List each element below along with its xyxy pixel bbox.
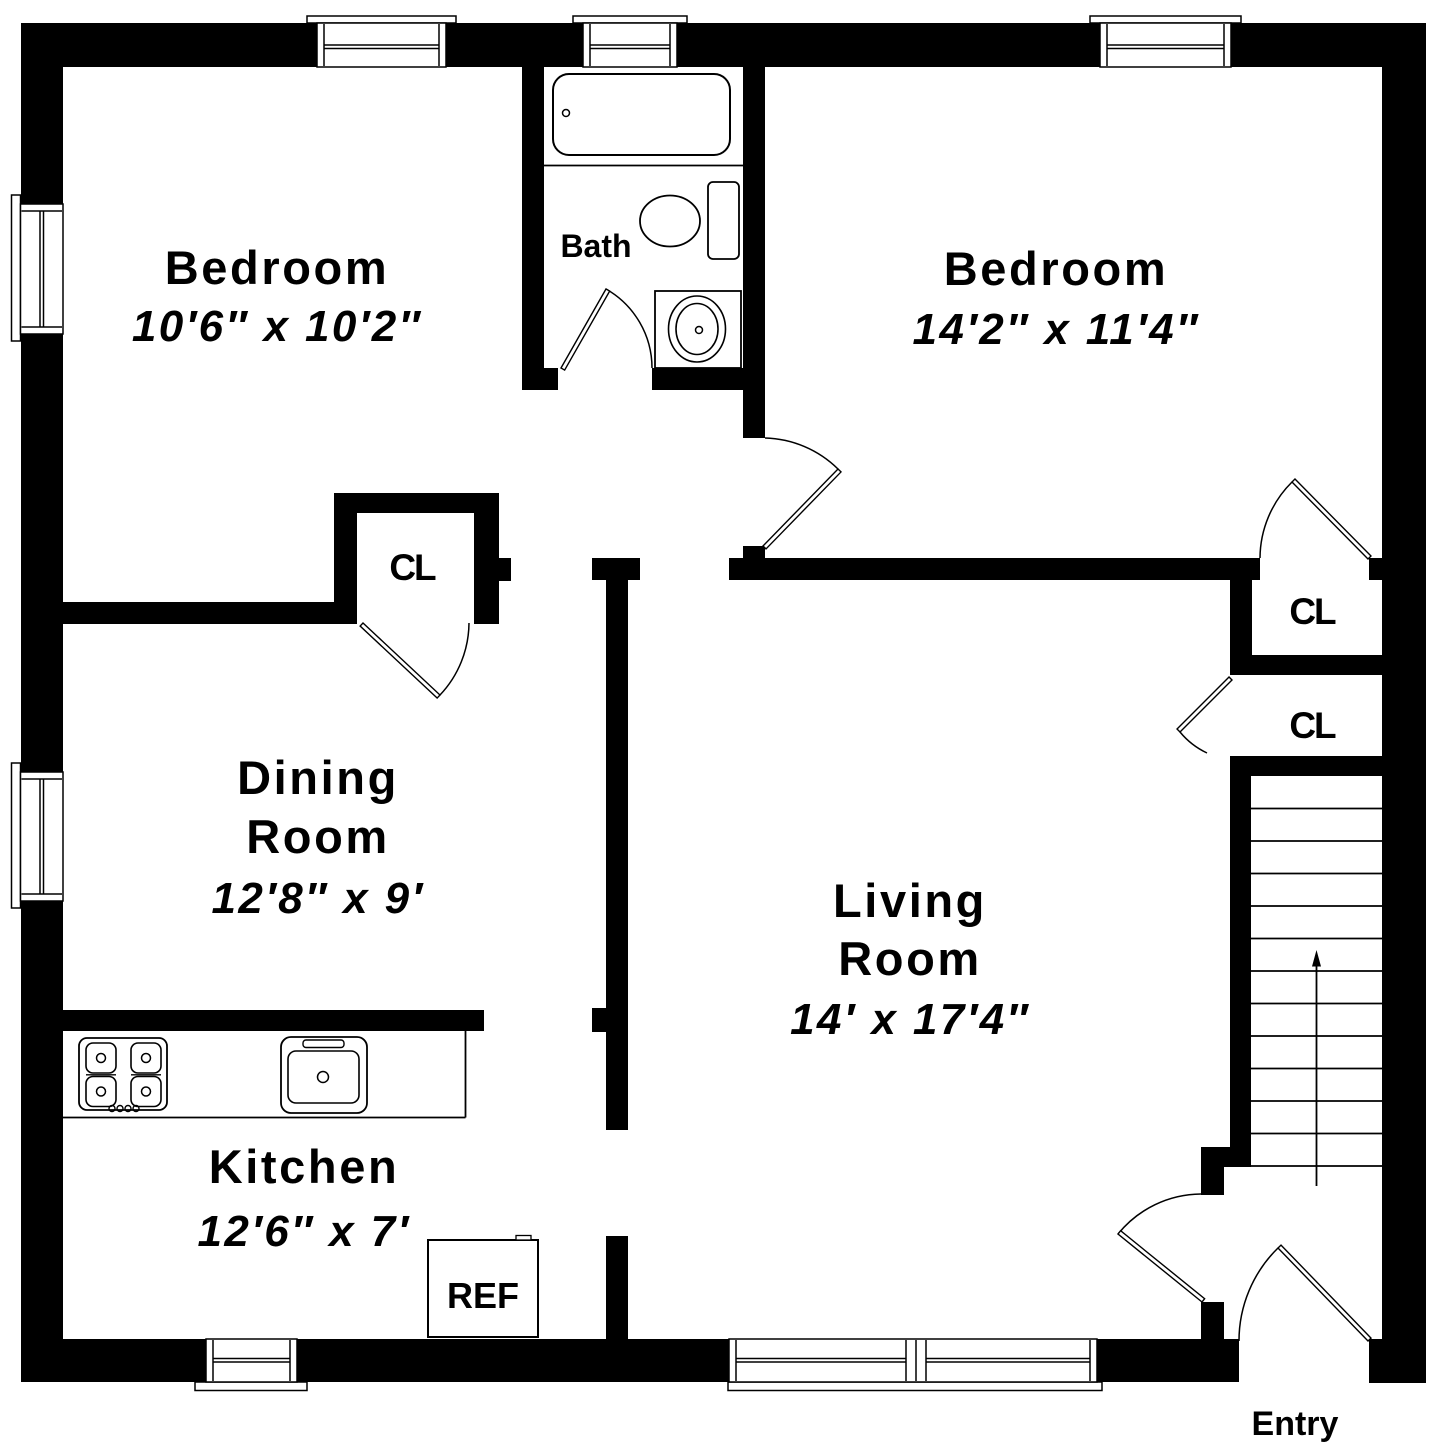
svg-text:REF: REF	[447, 1275, 519, 1316]
svg-text:Living: Living	[833, 874, 987, 927]
svg-text:Bath: Bath	[560, 228, 631, 264]
svg-text:12′6″ x 7′: 12′6″ x 7′	[198, 1207, 411, 1256]
svg-text:14′2″ x 11′4″: 14′2″ x 11′4″	[913, 305, 1200, 354]
svg-text:14′ x 17′4″: 14′ x 17′4″	[790, 995, 1030, 1044]
svg-text:Bedroom: Bedroom	[944, 242, 1169, 295]
svg-text:Room: Room	[246, 810, 390, 863]
svg-text:Dining: Dining	[237, 751, 399, 804]
svg-text:Kitchen: Kitchen	[209, 1140, 400, 1193]
svg-text:Room: Room	[838, 932, 982, 985]
svg-text:12′8″ x 9′: 12′8″ x 9′	[212, 874, 425, 923]
svg-text:Entry: Entry	[1252, 1405, 1339, 1443]
svg-text:CL: CL	[389, 547, 436, 588]
svg-text:CL: CL	[1289, 591, 1336, 632]
svg-text:10′6″ x 10′2″: 10′6″ x 10′2″	[132, 302, 422, 351]
svg-text:Bedroom: Bedroom	[165, 241, 390, 294]
svg-text:CL: CL	[1289, 705, 1336, 746]
